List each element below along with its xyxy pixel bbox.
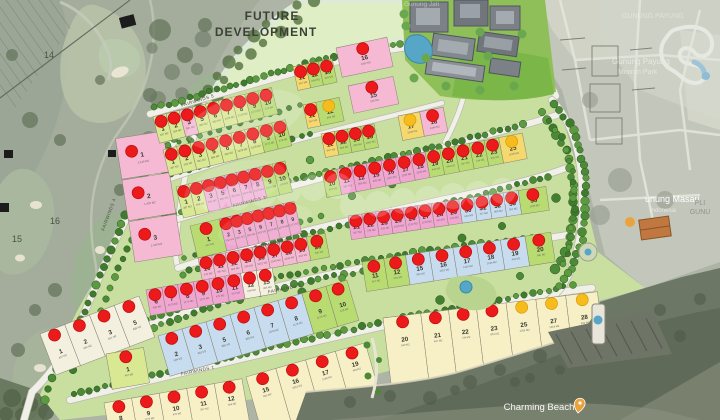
svg-text:GUNU: GUNU bbox=[690, 209, 711, 216]
svg-text:14: 14 bbox=[44, 50, 54, 60]
svg-text:Gunung Jati: Gunung Jati bbox=[404, 1, 439, 8]
svg-text:GUNUNG PAYUNG: GUNUNG PAYUNG bbox=[622, 13, 684, 20]
svg-text:Gunung Payung: Gunung Payung bbox=[612, 57, 670, 66]
svg-text:Charming Beach: Charming Beach bbox=[504, 402, 575, 413]
svg-text:15: 15 bbox=[12, 234, 22, 244]
svg-text:unung Masari: unung Masari bbox=[645, 194, 700, 204]
svg-text:PLI: PLI bbox=[695, 200, 706, 207]
svg-text:Indonesia: Indonesia bbox=[650, 208, 677, 214]
svg-text:16: 16 bbox=[50, 216, 60, 226]
svg-text:FUTURE: FUTURE bbox=[245, 9, 300, 23]
svg-text:DEVELOPMENT: DEVELOPMENT bbox=[215, 25, 317, 39]
svg-text:Miniran Park: Miniran Park bbox=[618, 69, 658, 76]
